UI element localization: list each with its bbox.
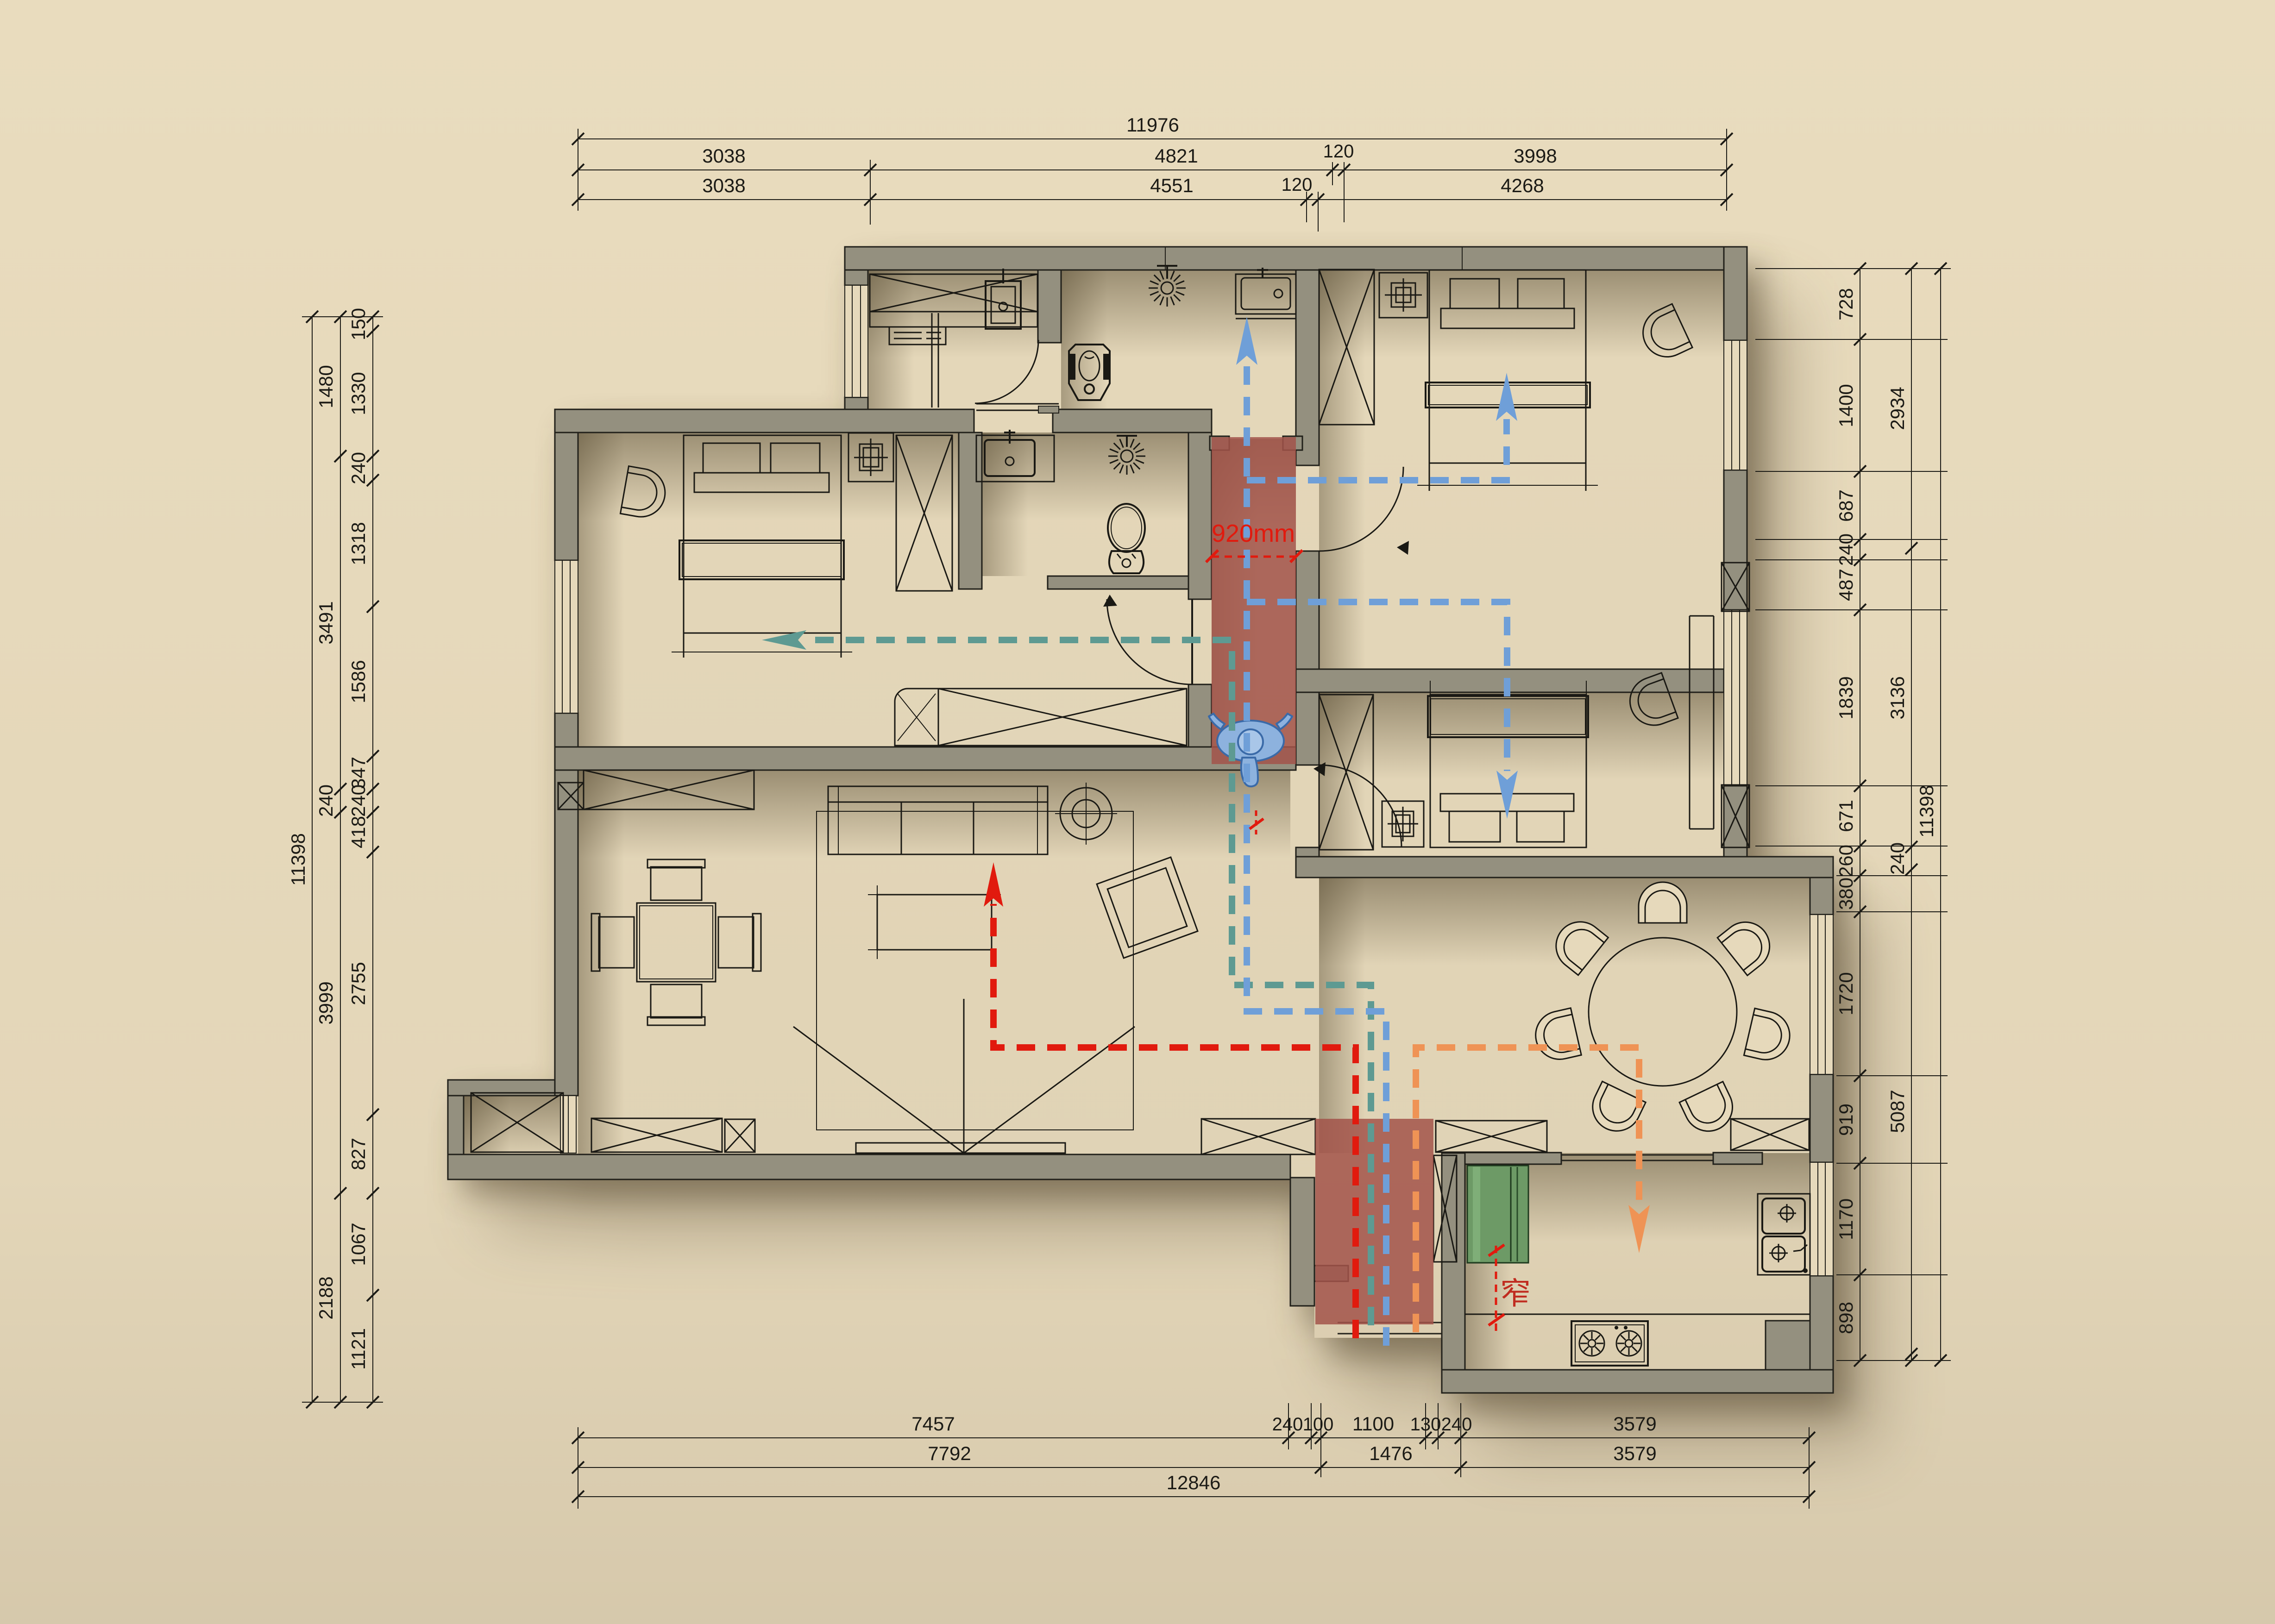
svg-text:1400: 1400 <box>1835 384 1857 427</box>
svg-text:150: 150 <box>347 308 369 340</box>
svg-text:3136: 3136 <box>1886 676 1908 719</box>
svg-text:1100: 1100 <box>1352 1413 1394 1435</box>
svg-text:671: 671 <box>1835 800 1857 832</box>
svg-text:120: 120 <box>1323 141 1354 162</box>
svg-text:919: 919 <box>1835 1104 1857 1136</box>
svg-text:4551: 4551 <box>1150 175 1193 196</box>
svg-text:1839: 1839 <box>1835 676 1857 719</box>
svg-text:11398: 11398 <box>1916 785 1937 838</box>
svg-text:1586: 1586 <box>347 660 369 703</box>
svg-text:687: 687 <box>1835 489 1857 522</box>
svg-text:1330: 1330 <box>347 372 369 415</box>
svg-text:1318: 1318 <box>347 522 369 565</box>
svg-text:240: 240 <box>347 784 369 817</box>
svg-text:827: 827 <box>347 1138 369 1170</box>
svg-text:7457: 7457 <box>911 1413 955 1435</box>
svg-text:240: 240 <box>1886 842 1908 875</box>
svg-text:3999: 3999 <box>315 981 337 1024</box>
svg-text:487: 487 <box>1835 569 1857 601</box>
svg-text:1476: 1476 <box>1369 1442 1412 1464</box>
svg-text:3998: 3998 <box>1514 145 1557 167</box>
svg-text:3038: 3038 <box>702 175 745 196</box>
svg-text:窄: 窄 <box>1500 1276 1531 1310</box>
svg-text:347: 347 <box>347 757 369 789</box>
svg-text:130: 130 <box>1410 1414 1441 1435</box>
svg-text:5087: 5087 <box>1886 1090 1908 1133</box>
svg-text:12846: 12846 <box>1167 1472 1221 1493</box>
svg-text:11976: 11976 <box>1126 114 1179 136</box>
svg-text:3491: 3491 <box>315 601 337 644</box>
svg-text:4821: 4821 <box>1155 145 1198 167</box>
svg-text:3579: 3579 <box>1613 1442 1656 1464</box>
svg-text:1067: 1067 <box>347 1223 369 1266</box>
svg-text:1121: 1121 <box>347 1328 369 1370</box>
svg-text:7792: 7792 <box>928 1442 971 1464</box>
svg-text:1480: 1480 <box>315 365 337 408</box>
svg-text:728: 728 <box>1835 288 1857 320</box>
svg-text:4268: 4268 <box>1501 175 1544 196</box>
svg-text:120: 120 <box>1282 175 1313 195</box>
svg-text:898: 898 <box>1835 1302 1857 1334</box>
svg-text:920mm: 920mm <box>1212 520 1295 547</box>
svg-text:11398: 11398 <box>287 833 309 886</box>
svg-text:380: 380 <box>1835 878 1857 910</box>
svg-text:2934: 2934 <box>1886 387 1908 430</box>
svg-text:100: 100 <box>1303 1414 1334 1435</box>
svg-text:1170: 1170 <box>1835 1198 1857 1240</box>
svg-text:240: 240 <box>315 784 337 817</box>
svg-text:2755: 2755 <box>347 962 369 1005</box>
svg-text:240: 240 <box>1272 1414 1303 1435</box>
svg-text:240: 240 <box>347 452 369 484</box>
svg-text:240: 240 <box>1441 1414 1472 1435</box>
svg-text:418: 418 <box>347 816 369 848</box>
svg-text:3038: 3038 <box>702 145 745 167</box>
svg-text:3579: 3579 <box>1613 1413 1656 1435</box>
svg-text:240: 240 <box>1835 533 1857 566</box>
svg-text:1720: 1720 <box>1835 972 1857 1015</box>
svg-text:260: 260 <box>1835 845 1857 877</box>
svg-text:2188: 2188 <box>315 1276 337 1319</box>
